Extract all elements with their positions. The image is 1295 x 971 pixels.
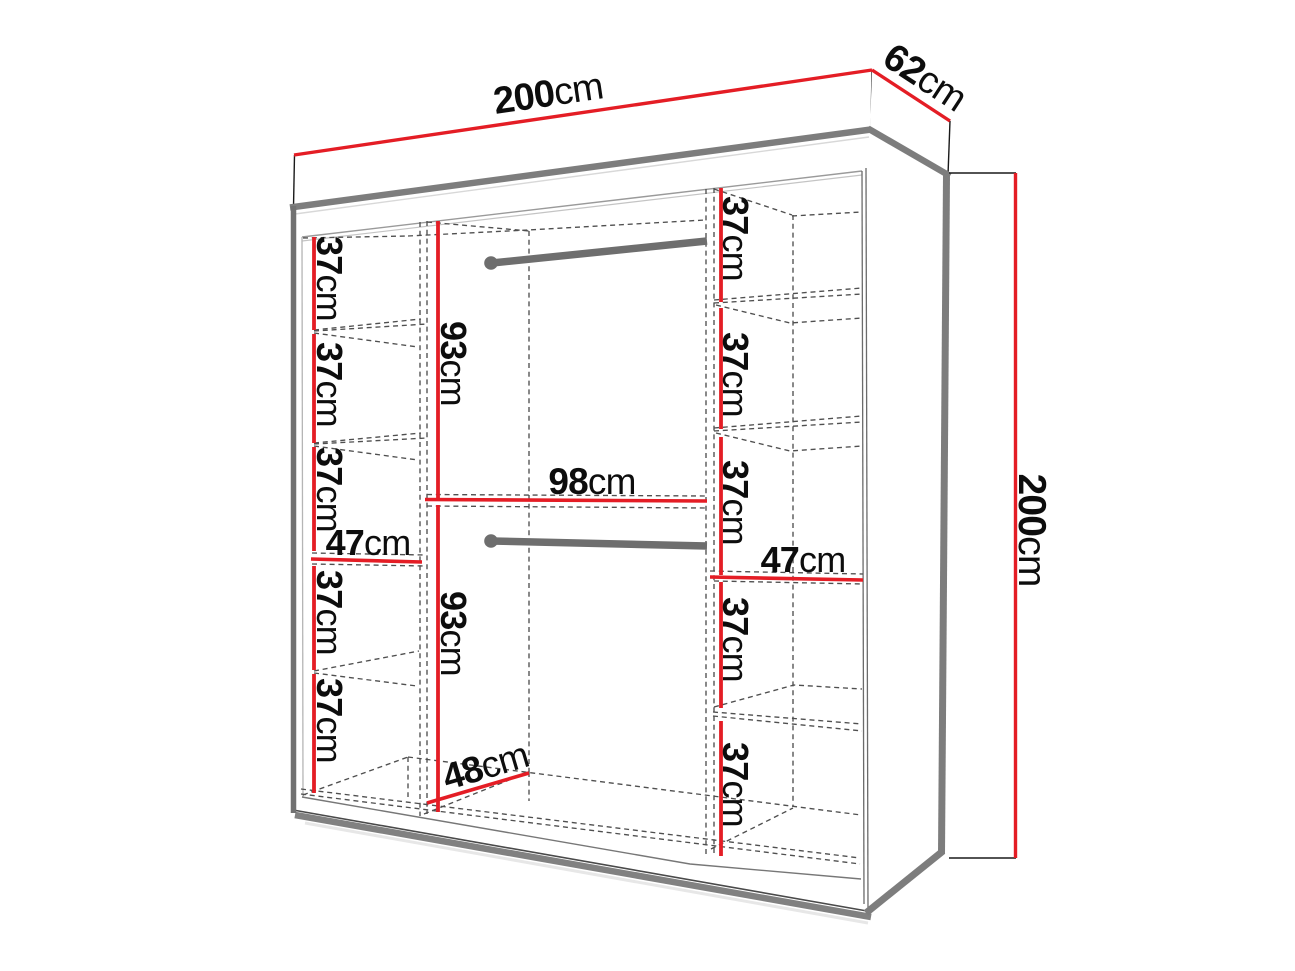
svg-text:93cm: 93cm [433, 591, 474, 676]
svg-text:37cm: 37cm [715, 742, 756, 827]
svg-text:47cm: 47cm [761, 539, 846, 580]
svg-text:200cm: 200cm [1010, 473, 1053, 586]
svg-text:37cm: 37cm [309, 678, 350, 763]
svg-text:37cm: 37cm [309, 236, 350, 321]
svg-text:98cm: 98cm [548, 461, 635, 502]
svg-text:37cm: 37cm [715, 597, 756, 682]
svg-text:37cm: 37cm [715, 196, 756, 281]
svg-text:93cm: 93cm [433, 321, 474, 406]
svg-text:37cm: 37cm [715, 332, 756, 417]
svg-text:37cm: 37cm [309, 447, 350, 532]
svg-text:37cm: 37cm [309, 570, 350, 655]
svg-text:37cm: 37cm [715, 460, 756, 545]
svg-text:37cm: 37cm [309, 342, 350, 427]
svg-text:47cm: 47cm [326, 522, 411, 563]
